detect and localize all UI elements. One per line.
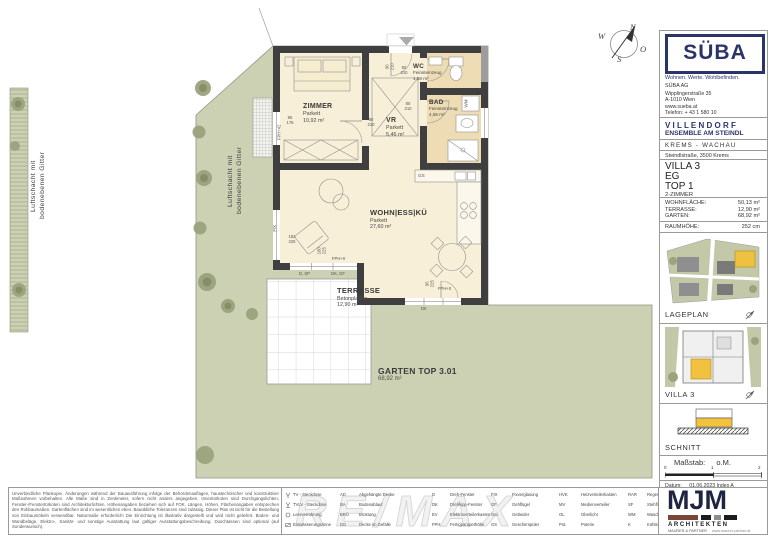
shaft-note2-line2: bodenebenen Gitter [39, 152, 46, 219]
room-label-bad: BAD Feinsteinzeug 4,56 m² [429, 99, 458, 117]
section-thumbnail [674, 407, 752, 440]
legend-abbr: RAR [628, 492, 647, 497]
legend-abbr: DK [432, 502, 450, 507]
legend-desc: Dreh-Fenster [450, 492, 491, 497]
room-height-row: RAUMHÖHE: 252 cm [665, 224, 760, 230]
disclaimer-text: Unverbindliche Plankopie. Änderungen wäh… [9, 488, 282, 532]
divider [660, 139, 767, 140]
legend-row: TVLV - Steckdose BA Bodenablauf DK Drehk… [285, 502, 666, 508]
compass-north: N [630, 22, 636, 32]
sueba-logo: SÜBA [665, 34, 765, 74]
mjm-logo-bar [668, 515, 737, 520]
title-block: SÜBA Wohnen. Werte. Wohlbefinden. SÜBA A… [659, 30, 768, 489]
project-subtitle: ENSEMBLE AM STEINDL [665, 130, 744, 137]
mjm-logo: MJM [667, 485, 727, 515]
legend-desc: Bodenablauf [359, 502, 432, 507]
legend-abbr: Pot. [559, 522, 581, 527]
shaft-note-line2: bodenebenen Gitter [236, 147, 243, 214]
legend-abbr: AD [340, 492, 359, 497]
legend-abbr: Gel. [491, 512, 512, 517]
legend-desc: Abgehängte Decke [359, 492, 432, 497]
brand-phone: Telefon: + 43 1 580 10 [665, 110, 716, 116]
dim-wc-door: 80 210 [398, 66, 410, 75]
shaft-grille [253, 98, 272, 157]
divider [660, 323, 767, 324]
villa-north-icon [744, 388, 757, 401]
area-value: 68,92 m² [738, 213, 760, 219]
legend-box: TV - Steckdose AD Abgehängte Decke D Dre… [281, 487, 660, 535]
project-name: V I L L E N D O R F [665, 121, 736, 130]
section-label: SCHNITT [665, 443, 701, 452]
legend-abbr: SF [628, 502, 647, 507]
height-value: 252 cm [742, 224, 760, 230]
divider [660, 150, 767, 151]
legend-abbr: BA [340, 502, 359, 507]
room-label-wc: WC Feinsteinzeug 1,59 m² [413, 63, 442, 81]
divider [660, 455, 767, 456]
room-label-zimmer: ZIMMER Parkett 10,92 m² [303, 103, 332, 124]
architect-firm: MAURER & PARTNER [668, 529, 707, 533]
dim-glazing1: D, SP [299, 272, 310, 277]
legend-abbr: GF [491, 502, 512, 507]
conduit-icon [285, 512, 293, 518]
legend-sym-label: Leerverrohrung [293, 512, 340, 517]
area-value: 50,13 m² [738, 200, 760, 206]
architect-box: MJM ARCHITEKTEN MAURER & PARTNER www.mau… [658, 487, 768, 535]
shaft-note-line1: Luftschacht mit [227, 155, 234, 207]
architect-subtitle: MAURER & PARTNER www.maurer-partner.at [668, 529, 750, 533]
dim-zimmer-window-height: FPH+42 [277, 125, 282, 140]
washing-machine-label: WM [464, 99, 469, 107]
divider [660, 197, 767, 198]
divider [660, 117, 767, 118]
scale-value: o.M. [716, 458, 731, 467]
siteplan-north-icon [744, 308, 757, 321]
brand-company: SÜBA AG [665, 83, 688, 89]
legend-desc: Fixverglasung [512, 492, 559, 497]
dim-zimmer-window: 95 176 [284, 116, 296, 125]
area-label: TERRASSE: [665, 207, 697, 213]
compass-east: O [640, 44, 646, 54]
scale-tick-2: 2 [758, 465, 761, 470]
dim-living-window2: 180 225 [317, 245, 326, 257]
divider [660, 480, 767, 481]
legend-row: TV - Steckdose AD Abgehängte Decke D Dre… [285, 492, 667, 498]
project-street: Steindlstraße, 3500 Krems [665, 153, 729, 159]
scale-label: Maßstab: [674, 458, 705, 467]
dim-garden-door: 95 225 [425, 278, 434, 290]
room-label-wohnesskue: WOHN|ESS|KÜ Parkett 27,60 m² [370, 209, 427, 231]
architect-title: ARCHITEKTEN [668, 522, 729, 528]
siteplan-label: LAGEPLAN [665, 310, 709, 319]
dishwasher-label: GS [418, 173, 425, 178]
siteplan-thumbnail [665, 237, 761, 305]
legend-abbr: DG [340, 522, 359, 527]
dim-zimmer-door: 80 210 [365, 118, 377, 127]
project-region: KREMS - WACHAU [665, 142, 737, 149]
shaft-note2-line1: Luftschacht mit [30, 160, 37, 212]
dim-entry-door: 90 210 [385, 61, 394, 73]
legend-desc: Oberlicht [581, 512, 628, 517]
garden-label: GARTEN TOP 3.01 68,92 m² [378, 366, 457, 383]
floor-plan-sheet: Luftschacht mit bodenebenen Gitter Lufts… [0, 0, 770, 545]
legend-abbr: EV [432, 512, 450, 517]
scale-bar [665, 472, 762, 478]
dim-fix-window: FIX [273, 225, 278, 232]
legend-abbr: GS [491, 522, 512, 527]
area-label: WOHNFLÄCHE: [665, 200, 706, 206]
area-value: 12,90 m² [738, 207, 760, 213]
room-label-terrasse: TERRASSE Betonplatten 12,90 m² [337, 287, 380, 309]
compass-south: S [617, 54, 621, 64]
legend-desc: Drehkipp-Fenster [450, 502, 491, 507]
legend-desc: Geschirrspüler [512, 522, 559, 527]
brand-address2: A-1010 Wien [665, 97, 695, 103]
tv-socket-icon [285, 492, 293, 498]
area-row-terrasse: TERRASSE: 12,90 m² [665, 207, 760, 213]
legend-abbr: BRÜ [340, 512, 359, 517]
legend-desc: Fertigparapethöhe [450, 522, 491, 527]
legend-desc: Poterie [581, 522, 628, 527]
legend-abbr: OL [559, 512, 581, 517]
divider [660, 159, 767, 160]
dim-glazing2: DK, GF [331, 272, 345, 277]
floor-plan-canvas [0, 0, 658, 487]
dim-living-parapet: FPH+0 [332, 257, 345, 262]
legend-abbr: HVK [559, 492, 581, 497]
architect-web: www.maurer-partner.at [712, 529, 750, 533]
height-label: RAUMHÖHE: [665, 224, 699, 230]
brand-tagline: Wohnen. Werte. Wohlbefinden. [665, 75, 740, 81]
dim-garden-glazing: DK [421, 307, 427, 312]
divider [660, 403, 767, 404]
area-row-garten: GARTEN: 68,92 m² [665, 213, 760, 219]
legend-desc: Brüstung [359, 512, 432, 517]
legend-row: Entwässerungsrinne DG Decke im Gefälle F… [285, 522, 670, 528]
legend-abbr: FPH [432, 522, 450, 527]
tvlv-socket-icon [285, 502, 293, 508]
villa-thumb-label: VILLA 3 [665, 390, 695, 399]
disclaimer-box: Unverbindliche Plankopie. Änderungen wäh… [8, 487, 283, 535]
legend-desc: Medienverteiler [581, 502, 628, 507]
legend-desc: Decke im Gefälle [359, 522, 432, 527]
legend-abbr: FIX [491, 492, 512, 497]
scale-row: Maßstab: o.M. [674, 458, 731, 467]
legend-sym-label: Entwässerungsrinne [293, 522, 340, 527]
legend-desc: Heizverteilerkasten [581, 492, 628, 497]
legend-desc: Gehflügel [512, 502, 559, 507]
scale-tick-1: 1 [711, 465, 714, 470]
divider [660, 232, 767, 233]
dim-living-window1: 182 225 [286, 235, 298, 244]
legend-row: Leerverrohrung BRÜ Brüstung EV Elektrove… [285, 512, 678, 518]
drain-channel-icon [285, 522, 293, 528]
legend-abbr: WM [628, 512, 647, 517]
room-label-vr: VR Parkett 5,46 m² [386, 117, 404, 138]
legend-abbr: MV [559, 502, 581, 507]
legend-abbr: K [628, 522, 647, 527]
legend-abbr: D [432, 492, 450, 497]
legend-sym-label: TVLV - Steckdose [293, 502, 340, 507]
corner-pillar [481, 46, 488, 82]
divider [660, 221, 767, 222]
dim-garden-door-parapet: FPH+0 [438, 287, 451, 292]
legend-sym-label: TV - Steckdose [293, 492, 340, 497]
legend-desc: Geländer [512, 512, 559, 517]
area-row-wohnflaeche: WOHNFLÄCHE: 50,13 m² [665, 200, 760, 206]
scale-tick-0: 0 [664, 465, 667, 470]
villa-thumbnail [665, 327, 761, 387]
unit-top: TOP 1 [665, 181, 694, 192]
dim-bad-door: 80 210 [402, 102, 414, 111]
compass-west: W [598, 31, 605, 41]
legend-desc: Elektroverteilerkasten [450, 512, 491, 517]
area-label: GARTEN: [665, 213, 690, 219]
